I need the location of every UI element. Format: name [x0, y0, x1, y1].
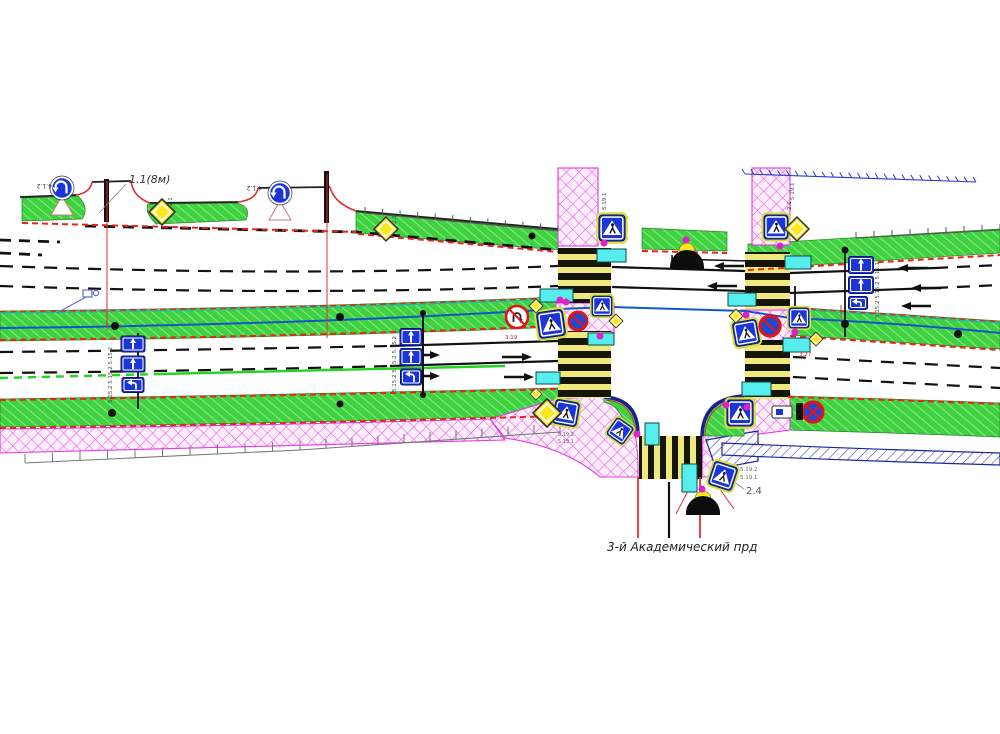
lower-right-dash-1 [793, 357, 1000, 368]
info-board [785, 256, 811, 269]
signal-post-dot [563, 299, 570, 306]
sign-code-5-19-1: 5.19.1 [790, 183, 796, 201]
shelter-dome [670, 250, 704, 269]
tree-dot [841, 320, 849, 328]
signal-post-dot [597, 333, 604, 340]
tree-dot [336, 313, 344, 321]
tree-dot [842, 247, 849, 254]
pedestrian-crossing-sign [725, 398, 754, 427]
fence-tick [858, 173, 861, 178]
fence-tick [884, 174, 887, 179]
sign-codes-5-15-2: 5.15.2 5.15.2 5.15.2 [392, 336, 398, 392]
lower-right-dash-2 [793, 377, 1000, 388]
street-name: 3-й Академический прд [607, 540, 757, 554]
leader-line [99, 184, 126, 213]
fence-tick [795, 171, 798, 176]
tree-dot [108, 409, 116, 417]
direction-arrow-head [430, 351, 440, 359]
sign-code-2-4: 2.4 [746, 486, 762, 497]
info-board [645, 423, 659, 445]
fence-tick [840, 172, 843, 177]
green-verges [0, 196, 1000, 437]
info-board [536, 372, 560, 384]
fence-tick [973, 177, 976, 182]
bus-stop-sign-glyph [776, 409, 783, 415]
signal-post-dot [699, 486, 706, 493]
signal-post-dot [683, 237, 690, 244]
pedestrian-crossing-sign [788, 307, 811, 330]
turn-direction-sign [268, 181, 292, 220]
fence-tick [929, 175, 932, 180]
fence-tick [831, 172, 834, 177]
pedestrian-crossing-sign [763, 214, 790, 241]
direction-arrow-head [707, 282, 717, 290]
plan-drawing: 1.1(8м)4.1.24.1.22.12.12.15.19.15.19.15.… [0, 0, 1000, 734]
wall-strip-bottom-right [722, 443, 1000, 465]
sidewalk-strip-left-crossing [558, 168, 598, 246]
fence-tick [804, 171, 807, 176]
sign-code-2-1: 2.1 [787, 201, 793, 210]
direction-arrow-head [898, 264, 908, 272]
camera-symbol [83, 290, 99, 297]
sign-code-5-19-2: 5.19.2 [558, 432, 574, 438]
upper-junction-line-2 [612, 287, 745, 291]
sign-code-2-1: 2.1 [168, 197, 174, 206]
sign-code-5-19-1: 5.19.1 [602, 193, 608, 211]
fence-tick [902, 175, 905, 180]
sign-code-4-1-2: 4.1.2 [247, 184, 262, 191]
tree-dot [337, 401, 344, 408]
signal-post-dot [792, 329, 799, 336]
sign-code-5-19-1: 5.19.1 [558, 439, 574, 445]
direction-arrow-head [901, 302, 911, 310]
pedestrian-crossing-sign [534, 307, 567, 340]
direction-arrow-head [522, 353, 532, 361]
tree-dot [420, 392, 426, 398]
fence-tick [822, 172, 825, 177]
tree-dot [111, 322, 119, 330]
fence-tick [813, 171, 816, 176]
lower-lane-dash-1 [0, 346, 390, 352]
info-board [597, 249, 626, 262]
pedestrian-crossing-sign [591, 295, 614, 318]
info-board [742, 382, 771, 396]
signal-cabinet [796, 403, 803, 420]
fence-tick [920, 175, 923, 180]
fence-tick [911, 175, 914, 180]
signal-post-dot [601, 240, 608, 247]
upper-right-dash-1 [935, 265, 1000, 268]
direction-arrow-head [430, 372, 440, 380]
sign-code-5-19-1: 5.19.1 [740, 475, 758, 481]
sign-code-2-1: 2.1 [392, 215, 398, 224]
direction-arrow-head [714, 262, 724, 270]
edge-dashes-far-left-2 [0, 253, 42, 255]
fence-tick [955, 176, 958, 181]
signal-post-dot [777, 243, 784, 250]
info-board [682, 464, 697, 492]
sign-code-4-1-2: 4.1.2 [37, 182, 52, 189]
info-board [783, 338, 810, 352]
median-left [0, 297, 558, 341]
shelter-dome [686, 496, 720, 515]
fence-tick [866, 173, 869, 178]
fence-tick [849, 173, 852, 178]
fence-tick [875, 174, 878, 179]
upper-lane-line-1 [0, 266, 558, 272]
signal-post-dot [634, 431, 641, 438]
tree-dot [529, 233, 536, 240]
fence-tick [742, 169, 745, 174]
upper-right-dash-2 [935, 285, 1000, 288]
tree-dot [420, 310, 426, 316]
info-board [728, 293, 756, 306]
sign-codes-5-15-x: 5.15.2 5.15.2 5.15.1 [875, 262, 881, 318]
traffic-plan-canvas: 1.1(8м)4.1.24.1.22.12.12.15.19.15.19.15.… [0, 0, 1000, 734]
signal-post-dot [557, 297, 564, 304]
sign-code-3-27: 3.27 [799, 352, 812, 358]
fence-tick [937, 176, 940, 181]
verge-top-left-1 [22, 196, 85, 221]
pedestrian-crossing-sign [597, 213, 626, 242]
tree-dot [954, 330, 962, 338]
signal-post-dot [743, 312, 750, 319]
marking-note: 1.1(8м) [129, 173, 170, 186]
direction-arrow-head [911, 284, 921, 292]
sign-code-5-19-2: 5.19.2 [740, 467, 758, 473]
edge-dashes-far-left-1 [0, 240, 60, 242]
fence-tick [893, 174, 896, 179]
fence-tick [946, 176, 949, 181]
fence-tick [964, 177, 967, 182]
sign-code-3-19: 3.19 [505, 335, 518, 341]
direction-arrow-head [524, 373, 534, 381]
sign-codes-5-15-2: 5.15.2 5.15.2 5.15.2 [108, 347, 114, 403]
signal-post-dot [744, 404, 751, 411]
signal-post-dot [723, 402, 730, 409]
